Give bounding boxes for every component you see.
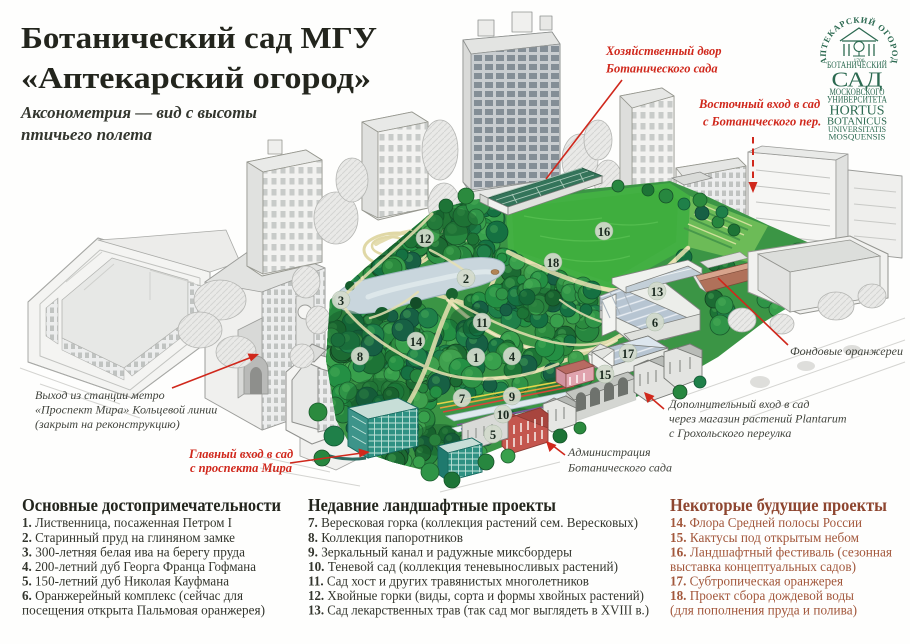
svg-text:Аксонометрия — вид с высоты: Аксонометрия — вид с высоты bbox=[20, 103, 257, 122]
svg-text:16. Ландшафтный фестиваль (сез: 16. Ландшафтный фестиваль (сезонная bbox=[670, 546, 893, 561]
svg-text:13: 13 bbox=[651, 285, 664, 299]
svg-text:Ботанический сад МГУ: Ботанический сад МГУ bbox=[21, 20, 377, 55]
svg-text:6. Оранжерейный комплекс (сейч: 6. Оранжерейный комплекс (сейчас для bbox=[22, 589, 244, 604]
svg-text:6: 6 bbox=[652, 316, 658, 330]
svg-text:9. Зеркальный канал и радужные: 9. Зеркальный канал и радужные миксборде… bbox=[308, 546, 573, 561]
svg-text:12. Хвойные горки (виды, сорта: 12. Хвойные горки (виды, сорта и формы х… bbox=[308, 589, 644, 604]
svg-text:Восточный вход в сад: Восточный вход в сад bbox=[698, 97, 820, 111]
svg-text:8: 8 bbox=[357, 350, 363, 364]
svg-text:с проспекта Мира: с проспекта Мира bbox=[190, 461, 292, 475]
svg-text:1. Лиственница, посаженная Пет: 1. Лиственница, посаженная Петром I bbox=[22, 516, 232, 531]
svg-text:15. Кактусы под открытым небом: 15. Кактусы под открытым небом bbox=[670, 531, 859, 546]
svg-text:«Проспект Мира» Кольцевой лини: «Проспект Мира» Кольцевой линии bbox=[35, 403, 217, 417]
svg-text:7. Вересковая горка (коллекция: 7. Вересковая горка (коллекция растений … bbox=[308, 516, 638, 531]
svg-text:«Аптекарский огород»: «Аптекарский огород» bbox=[21, 60, 371, 95]
svg-text:(закрыт на реконструкцию): (закрыт на реконструкцию) bbox=[35, 417, 180, 431]
svg-text:7: 7 bbox=[459, 392, 465, 406]
svg-text:3. 300-летняя белая ива на бер: 3. 300-летняя белая ива на берегу пруда bbox=[22, 546, 246, 561]
svg-text:17. Субтропическая оранжерея: 17. Субтропическая оранжерея bbox=[670, 575, 844, 590]
svg-text:14. Флора Средней полосы Росси: 14. Флора Средней полосы России bbox=[670, 516, 862, 531]
svg-text:через магазин растений Plantar: через магазин растений Plantarum bbox=[669, 412, 847, 426]
svg-text:4. 200-летний дуб Георга Франц: 4. 200-летний дуб Георга Франца Гофмана bbox=[22, 560, 257, 575]
svg-text:посещения открыта Пальмовая ор: посещения открыта Пальмовая оранжерея) bbox=[22, 604, 265, 619]
svg-text:Недавние ландшафтные проекты: Недавние ландшафтные проекты bbox=[308, 495, 556, 515]
svg-text:Основные достопримечательности: Основные достопримечательности bbox=[22, 495, 281, 515]
svg-text:(для пополнения пруда и полива: (для пополнения пруда и полива) bbox=[670, 604, 857, 619]
svg-text:8. Коллекция папоротников: 8. Коллекция папоротников bbox=[308, 531, 463, 546]
svg-text:выставка концептуальных садов): выставка концептуальных садов) bbox=[670, 560, 856, 575]
svg-text:3: 3 bbox=[338, 294, 344, 308]
svg-text:Выход из станции метро: Выход из станции метро bbox=[35, 388, 165, 402]
svg-text:Ботанического сада: Ботанического сада bbox=[567, 461, 672, 475]
svg-text:11. Сад хост и других травянис: 11. Сад хост и других травянистых многол… bbox=[308, 575, 589, 590]
svg-text:Дополнительный вход в сад: Дополнительный вход в сад bbox=[668, 397, 809, 411]
svg-text:Администрация: Администрация bbox=[567, 445, 651, 459]
svg-text:12: 12 bbox=[419, 232, 432, 246]
svg-text:15: 15 bbox=[599, 368, 612, 382]
svg-text:9: 9 bbox=[509, 390, 515, 404]
svg-text:10. Теневой сад (коллекция тен: 10. Теневой сад (коллекция теневыносливы… bbox=[308, 560, 618, 575]
svg-text:5. 150-летний дуб Николая Кауф: 5. 150-летний дуб Николая Кауфмана bbox=[22, 575, 230, 590]
svg-text:2: 2 bbox=[463, 272, 469, 286]
svg-text:5: 5 bbox=[490, 428, 496, 442]
svg-text:10: 10 bbox=[497, 408, 510, 422]
svg-text:MOSQUENSIS: MOSQUENSIS bbox=[829, 132, 886, 142]
svg-text:Фондовые оранжереи: Фондовые оранжереи bbox=[790, 344, 903, 358]
svg-text:Некоторые будущие проекты: Некоторые будущие проекты bbox=[670, 495, 887, 515]
svg-text:с Ботанического пер.: с Ботанического пер. bbox=[703, 115, 821, 129]
svg-text:18: 18 bbox=[547, 256, 560, 270]
svg-text:Хозяйственный двор: Хозяйственный двор bbox=[605, 44, 721, 58]
svg-text:1: 1 bbox=[473, 351, 479, 365]
svg-text:18. Проект сбора дождевой воды: 18. Проект сбора дождевой воды bbox=[670, 589, 855, 604]
svg-text:13. Сад лекарственных трав (та: 13. Сад лекарственных трав (так сад мог … bbox=[308, 604, 649, 619]
svg-text:с Грохольского переулка: с Грохольского переулка bbox=[669, 426, 791, 440]
svg-text:2. Старинный пруд на глиняном: 2. Старинный пруд на глиняном замке bbox=[22, 531, 235, 546]
svg-text:14: 14 bbox=[410, 335, 423, 349]
svg-text:11: 11 bbox=[476, 316, 488, 330]
svg-text:птичьего полета: птичьего полета bbox=[21, 125, 152, 144]
svg-text:4: 4 bbox=[509, 350, 516, 364]
svg-text:Главный вход в сад: Главный вход в сад bbox=[188, 447, 293, 461]
svg-text:17: 17 bbox=[622, 347, 635, 361]
svg-text:Ботанического сада: Ботанического сада bbox=[605, 62, 718, 76]
svg-text:16: 16 bbox=[598, 225, 611, 239]
